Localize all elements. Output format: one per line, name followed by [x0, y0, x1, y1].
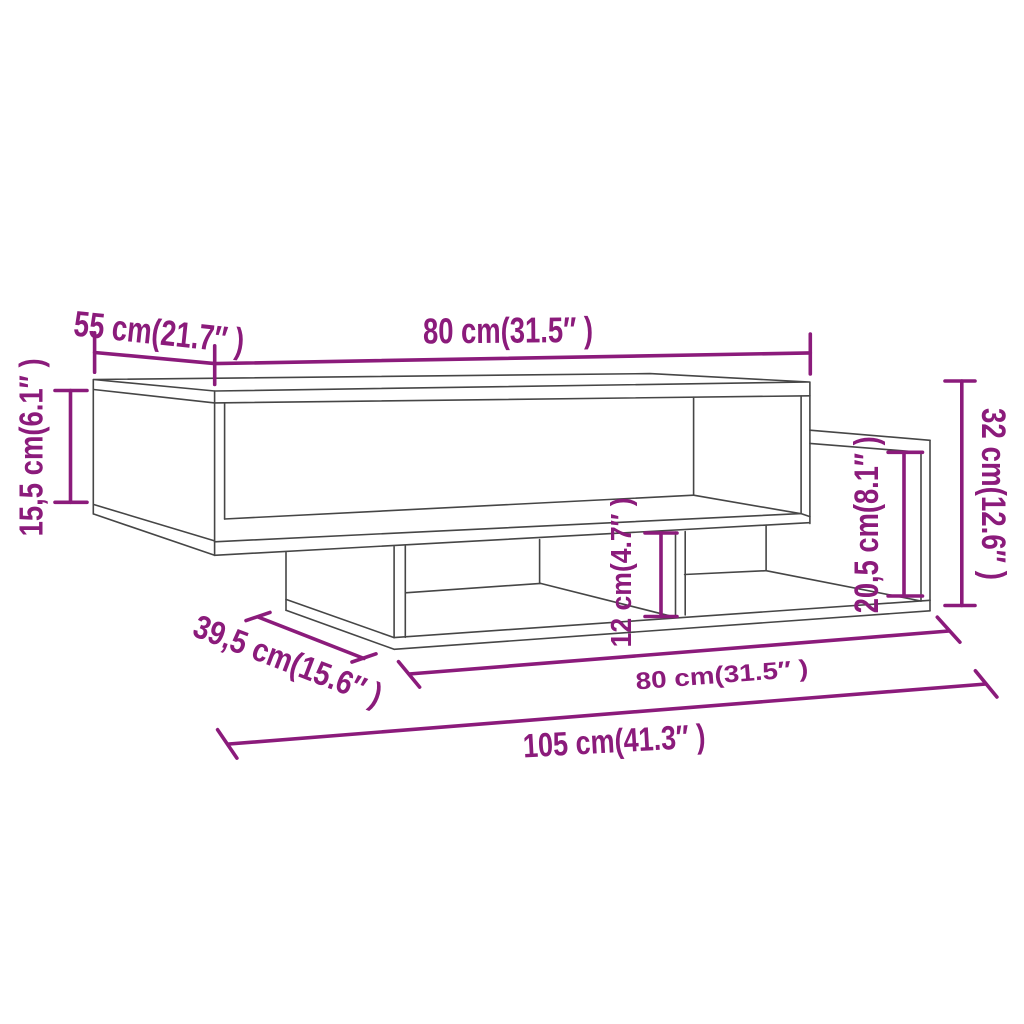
svg-text:20,5 cm(8.1″ ): 20,5 cm(8.1″ ): [848, 436, 886, 613]
svg-text:32 cm(12.6″ ): 32 cm(12.6″ ): [974, 408, 1012, 580]
svg-text:15,5 cm(6.1″ ): 15,5 cm(6.1″ ): [13, 358, 50, 536]
svg-text:12 cm(4.7″ ): 12 cm(4.7″ ): [606, 497, 638, 647]
svg-text:80 cm(31.5″ ): 80 cm(31.5″ ): [423, 309, 593, 351]
